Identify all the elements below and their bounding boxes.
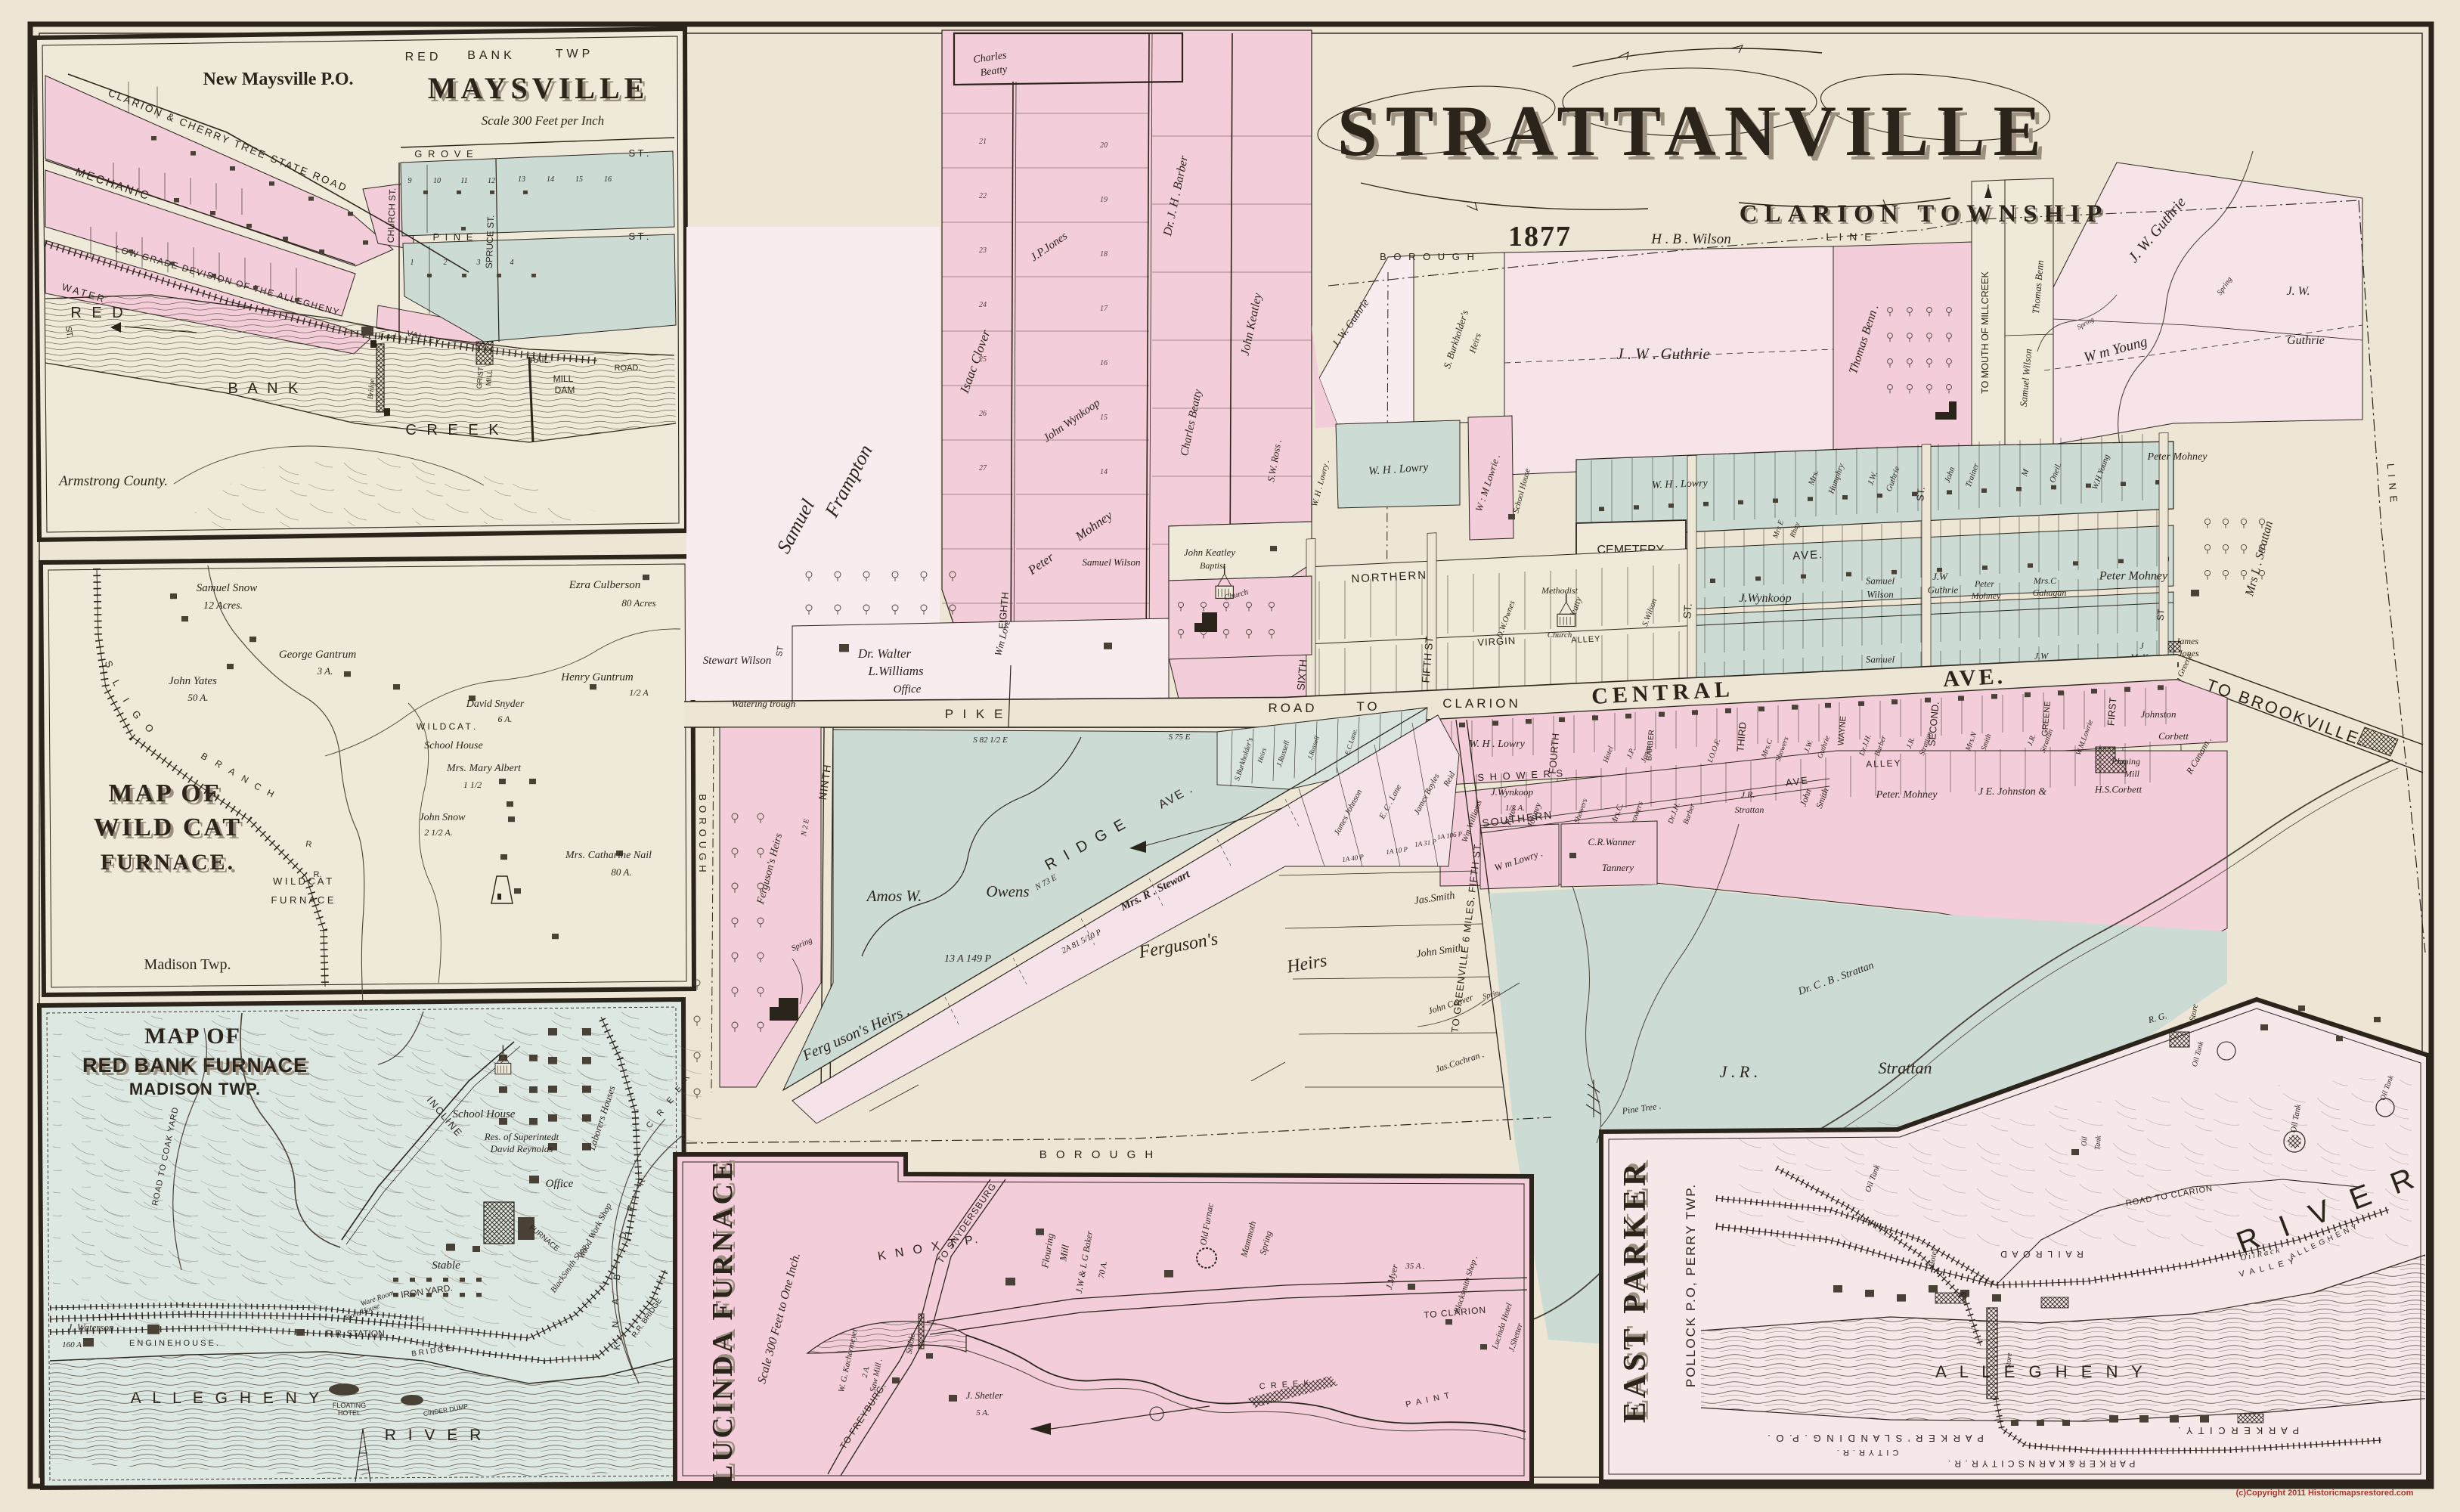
svg-text:TWP: TWP <box>556 48 594 60</box>
svg-text:B O R O U G H: B O R O U G H <box>1380 251 1476 262</box>
svg-text:RED BANK FURNACE: RED BANK FURNACE <box>82 1054 308 1077</box>
svg-text:R E D: R E D <box>70 305 125 321</box>
svg-text:19: 19 <box>1100 196 1108 204</box>
svg-text:ST.: ST. <box>1914 486 1927 501</box>
svg-text:1/2 A.: 1/2 A. <box>1505 804 1525 813</box>
svg-text:J . R .: J . R . <box>1720 1062 1758 1081</box>
svg-text:Ezra Culberson: Ezra Culberson <box>569 579 641 591</box>
svg-text:Wilson: Wilson <box>1867 589 1893 600</box>
svg-text:(c)Copyright 2011 Historicmaps: (c)Copyright 2011 Historicmapsrestored.c… <box>2236 1489 2414 1498</box>
svg-text:John Yates: John Yates <box>169 675 217 687</box>
svg-text:ST.: ST. <box>1681 603 1694 619</box>
svg-text:S T .: S T . <box>629 231 649 242</box>
svg-text:21: 21 <box>979 138 987 146</box>
svg-text:18: 18 <box>1100 250 1108 259</box>
svg-text:J.Wynkoop: J.Wynkoop <box>1739 592 1791 605</box>
svg-text:J. Shetler: J. Shetler <box>965 1390 1003 1401</box>
svg-text:POLLOCK P.O, PERRY TWP.: POLLOCK P.O, PERRY TWP. <box>1684 1183 1698 1387</box>
svg-text:C.R.Wanner: C.R.Wanner <box>1588 836 1636 847</box>
svg-text:FURNACE.: FURNACE. <box>101 850 235 875</box>
svg-text:J.Wynkoop: J.Wynkoop <box>1491 786 1534 798</box>
svg-text:A L L E G H E N Y: A L L E G H E N Y <box>131 1390 324 1407</box>
svg-text:P I N E: P I N E <box>433 231 475 243</box>
svg-text:22: 22 <box>979 192 987 200</box>
svg-text:Hotel: Hotel <box>377 332 396 341</box>
svg-text:R: R <box>305 840 313 850</box>
svg-text:F U R N A C E: F U R N A C E <box>271 894 333 906</box>
svg-text:R I V E R: R I V E R <box>385 1427 485 1444</box>
svg-text:Stewart Wilson: Stewart Wilson <box>703 655 771 667</box>
svg-text:A: A <box>610 1298 621 1305</box>
svg-text:9: 9 <box>408 177 412 185</box>
svg-text:Tannery: Tannery <box>1602 862 1634 873</box>
svg-text:Church: Church <box>1548 631 1572 640</box>
svg-text:1: 1 <box>411 259 414 267</box>
svg-text:1 1/2: 1 1/2 <box>463 779 482 790</box>
svg-text:BANK: BANK <box>467 49 516 62</box>
svg-text:J . W . Guthrie: J . W . Guthrie <box>1616 345 1710 363</box>
svg-text:MADISON TWP.: MADISON TWP. <box>129 1080 261 1098</box>
svg-text:J.R.: J.R. <box>1741 789 1755 800</box>
svg-text:3 A.: 3 A. <box>317 665 333 677</box>
svg-text:Corbett: Corbett <box>2158 730 2189 742</box>
svg-text:MILL: MILL <box>485 370 494 386</box>
svg-text:E N G I N E H O U S E .: E N G I N E H O U S E . <box>129 1339 218 1348</box>
svg-text:Henry Guntrum: Henry Guntrum <box>560 671 634 683</box>
svg-text:Johnston: Johnston <box>2141 708 2177 720</box>
svg-text:BOROUGH: BOROUGH <box>697 794 708 876</box>
svg-text:ALLEY: ALLEY <box>1866 758 1902 770</box>
svg-text:P I K E: P I K E <box>945 707 1006 721</box>
svg-text:Mrs. Catharine Nail: Mrs. Catharine Nail <box>565 850 652 861</box>
svg-text:3: 3 <box>476 259 481 267</box>
svg-text:P A R K E R C I T Y .: P A R K E R C I T Y . <box>2177 1425 2299 1436</box>
svg-text:S 82 1/2 E: S 82 1/2 E <box>973 736 1008 745</box>
svg-text:J.W: J.W <box>1932 571 1948 582</box>
svg-text:W. H . Lowry: W. H . Lowry <box>1652 478 1709 491</box>
svg-text:George Gantrum: George Gantrum <box>279 649 357 661</box>
svg-text:Owens: Owens <box>986 882 1029 900</box>
svg-text:FLOATING: FLOATING <box>333 1402 366 1409</box>
svg-text:1/2 A: 1/2 A <box>629 687 649 698</box>
svg-text:6 A.: 6 A. <box>497 714 512 724</box>
svg-text:ALLEY: ALLEY <box>1571 634 1601 645</box>
svg-text:2 1/2 A.: 2 1/2 A. <box>424 827 452 838</box>
svg-text:John Keatley: John Keatley <box>1184 547 1235 558</box>
svg-text:Office: Office <box>546 1178 574 1190</box>
svg-text:ROAD.: ROAD. <box>615 364 641 373</box>
svg-text:P A R K E R ' S L A N D I N: P A R K E R ' S L A N D I N G . P. O . <box>1766 1433 1984 1444</box>
svg-text:17: 17 <box>1100 305 1108 313</box>
svg-text:EAST PARKER: EAST PARKER <box>1618 1160 1653 1424</box>
svg-text:Oil: Oil <box>2080 1136 2089 1147</box>
svg-text:Tank: Tank <box>2093 1135 2103 1151</box>
svg-text:Samuel Wilson: Samuel Wilson <box>1083 556 1141 568</box>
svg-text:Methodist: Methodist <box>1541 585 1579 596</box>
svg-text:14: 14 <box>1100 468 1108 476</box>
svg-text:School House: School House <box>424 740 482 751</box>
svg-text:Store: Store <box>2004 1352 2014 1368</box>
svg-text:RED: RED <box>405 51 442 64</box>
svg-text:Samuel Snow: Samuel Snow <box>197 582 257 594</box>
svg-text:W I L D C A T: W I L D C A T <box>273 875 332 887</box>
svg-text:Strattan: Strattan <box>1735 804 1764 815</box>
svg-text:Mohney: Mohney <box>1971 590 2001 601</box>
svg-text:C R E E K: C R E E K <box>405 422 501 438</box>
svg-text:Baptist: Baptist <box>1200 560 1226 571</box>
svg-text:Mrs.C: Mrs.C <box>2033 575 2057 586</box>
svg-text:A L L E G H E N Y: A L L E G H E N Y <box>1935 1362 2147 1381</box>
svg-text:David Snyder: David Snyder <box>466 699 525 710</box>
svg-text:Dr. Walter: Dr. Walter <box>857 646 912 661</box>
svg-text:L I N E: L I N E <box>1826 231 1873 243</box>
svg-text:4: 4 <box>510 259 514 267</box>
svg-text:CLARION: CLARION <box>1442 696 1521 711</box>
svg-text:MILL: MILL <box>553 373 574 384</box>
svg-text:AVE.: AVE. <box>1792 548 1824 562</box>
svg-text:ROAD: ROAD <box>1268 701 1317 715</box>
svg-text:MAYSVILLE: MAYSVILLE <box>428 71 649 105</box>
svg-text:Peter: Peter <box>1974 578 1994 589</box>
svg-text:CHURCH ST.: CHURCH ST. <box>386 187 398 243</box>
svg-text:26: 26 <box>979 410 987 418</box>
svg-text:R.R. STATION: R.R. STATION <box>326 1328 385 1339</box>
svg-text:Res. of Superintedt: Res. of Superintedt <box>484 1131 559 1142</box>
svg-text:20: 20 <box>1100 141 1108 150</box>
svg-text:13: 13 <box>518 175 525 184</box>
svg-text:Samuel: Samuel <box>1866 654 1895 665</box>
svg-text:B A N K: B A N K <box>228 380 302 397</box>
svg-text:L.Williams: L.Williams <box>867 664 924 678</box>
svg-text:SPRUCE ST.: SPRUCE ST. <box>484 215 496 268</box>
svg-text:John Snow: John Snow <box>419 812 466 823</box>
svg-text:23: 23 <box>979 246 987 255</box>
svg-text:DAM: DAM <box>555 385 575 395</box>
svg-text:HOTEL: HOTEL <box>338 1409 361 1417</box>
svg-text:27: 27 <box>979 464 987 472</box>
svg-text:Madison Twp.: Madison Twp. <box>144 956 231 973</box>
svg-text:15: 15 <box>1100 414 1108 422</box>
svg-text:K: K <box>612 1343 623 1350</box>
svg-text:Stable: Stable <box>432 1259 460 1272</box>
svg-text:ST: ST <box>2155 608 2166 621</box>
svg-text:Amos W.: Amos W. <box>866 887 922 905</box>
svg-text:J. W.: J. W. <box>2287 285 2310 298</box>
svg-text:Guthrie: Guthrie <box>2287 334 2325 347</box>
svg-text:Samuel: Samuel <box>1866 575 1895 587</box>
svg-text:13 A 149 P: 13 A 149 P <box>944 953 992 965</box>
svg-text:C I T Y R . R .: C I T Y R . R . <box>1836 1448 1899 1457</box>
svg-text:ST: ST <box>775 645 785 657</box>
svg-text:35 A .: 35 A . <box>1405 1262 1425 1271</box>
svg-text:P A R K E R & K A R N S: P A R K E R & K A R N S C I T Y R . R . <box>1947 1458 2136 1469</box>
svg-text:25: 25 <box>979 355 987 364</box>
svg-text:School House: School House <box>453 1108 516 1120</box>
svg-text:12: 12 <box>488 177 495 185</box>
svg-text:Peter Mohney: Peter Mohney <box>2099 570 2168 583</box>
svg-text:TO: TO <box>1356 699 1380 714</box>
svg-text:16: 16 <box>1100 359 1108 367</box>
svg-text:80 Acres: 80 Acres <box>621 597 655 609</box>
svg-text:H.S.Corbett: H.S.Corbett <box>2094 784 2142 795</box>
svg-text:TO MOUTH OF MILLCREEK: TO MOUTH OF MILLCREEK <box>1980 271 1991 394</box>
svg-text:J E. Johnston &: J E. Johnston & <box>1978 786 2046 798</box>
svg-text:S 75 E: S 75 E <box>1169 733 1191 742</box>
svg-text:24: 24 <box>979 301 987 309</box>
svg-text:RAIL.: RAIL. <box>530 356 551 365</box>
svg-text:J.W: J.W <box>2034 650 2049 661</box>
svg-text:S T .: S T . <box>629 147 649 159</box>
svg-text:12 Acres.: 12 Acres. <box>203 600 243 612</box>
svg-text:J: J <box>2139 640 2144 651</box>
svg-text:50 A.: 50 A. <box>187 692 208 703</box>
svg-text:80 A.: 80 A. <box>611 866 631 878</box>
svg-text:10: 10 <box>433 177 441 185</box>
svg-text:MAP OF: MAP OF <box>144 1024 241 1049</box>
svg-text:11: 11 <box>460 177 467 185</box>
svg-text:B O R O U G H: B O R O U G H <box>1039 1148 1157 1161</box>
svg-text:AVE.: AVE. <box>1942 664 2006 692</box>
svg-text:New Maysville P.O.: New Maysville P.O. <box>203 70 353 89</box>
svg-text:16: 16 <box>604 175 612 184</box>
svg-text:STRATTANVILLE: STRATTANVILLE <box>1337 91 2049 171</box>
svg-text:J. Waterson: J. Waterson <box>68 1321 114 1333</box>
svg-text:1877: 1877 <box>1508 221 1572 253</box>
svg-text:H . B . Wilson: H . B . Wilson <box>1650 231 1731 247</box>
svg-text:5 A.: 5 A. <box>976 1408 990 1417</box>
svg-text:W I L D C A T .: W I L D C A T . <box>417 721 476 732</box>
svg-text:Watering trough: Watering trough <box>732 698 796 709</box>
svg-text:2: 2 <box>444 259 448 267</box>
svg-text:W. H . Lowry: W. H . Lowry <box>1469 739 1526 750</box>
svg-text:Peter. Mohney: Peter. Mohney <box>1876 789 1938 801</box>
svg-text:N: N <box>610 1321 621 1328</box>
svg-text:CLARION TOWNSHIP: CLARION TOWNSHIP <box>1740 200 2108 228</box>
svg-text:WILD CAT: WILD CAT <box>94 813 242 841</box>
svg-text:LUCINDA FURNACE: LUCINDA FURNACE <box>707 1159 739 1485</box>
svg-text:David Reynolds: David Reynolds <box>490 1143 553 1154</box>
svg-text:Mrs. Mary Albert: Mrs. Mary Albert <box>446 763 522 774</box>
svg-text:Peter Mohney: Peter Mohney <box>2147 451 2208 463</box>
svg-text:Scale 300 Feet per Inch: Scale 300 Feet per Inch <box>482 113 604 128</box>
svg-text:Gahagan: Gahagan <box>2033 587 2067 598</box>
svg-text:Armstrong County.: Armstrong County. <box>57 473 168 489</box>
svg-text:Office: Office <box>894 683 922 696</box>
svg-text:R A I L R O A D: R A I L R O A D <box>1999 1249 2084 1259</box>
svg-text:Guthrie: Guthrie <box>1928 584 1959 596</box>
svg-text:15: 15 <box>575 175 583 184</box>
svg-text:14: 14 <box>547 175 554 184</box>
svg-text:G R O V E: G R O V E <box>414 148 474 160</box>
svg-text:160 A: 160 A <box>62 1340 82 1349</box>
